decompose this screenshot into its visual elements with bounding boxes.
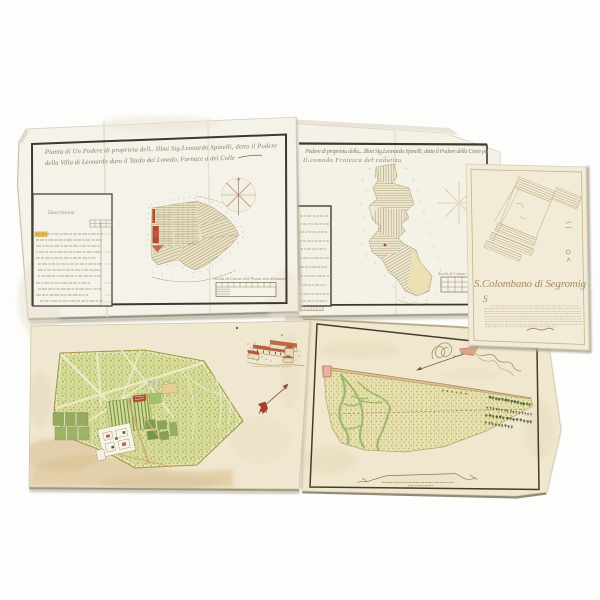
svg-text:S.Colombano di Segromig: S.Colombano di Segromig <box>474 278 587 290</box>
svg-text:Descrizione: Descrizione <box>47 210 75 216</box>
svg-text:Scala di Canne dal Piano sito: Scala di Canne dal Piano sito distanza <box>214 276 286 281</box>
svg-text:Pedere di proprieta della... I: Pedere di proprieta della... Illmi Sig.L… <box>304 148 488 155</box>
svg-text:Il.comodo Fratesca del cadutiz: Il.comodo Fratesca del cadutizo <box>302 157 401 164</box>
svg-text:S: S <box>483 294 488 304</box>
